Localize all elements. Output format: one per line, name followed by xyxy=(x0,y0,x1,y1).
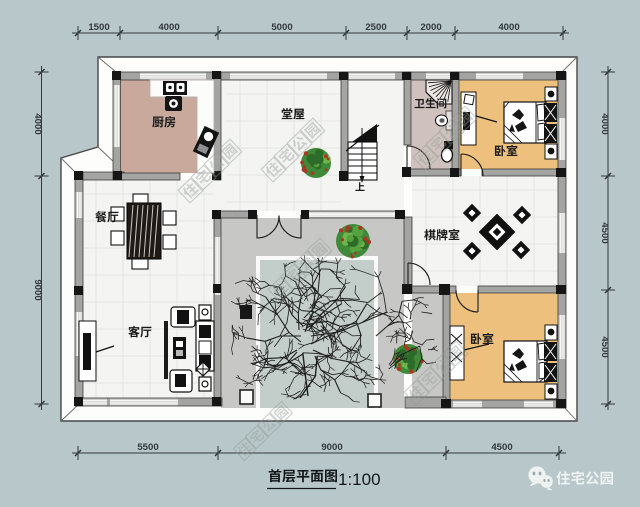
svg-text:1:100: 1:100 xyxy=(338,470,381,489)
svg-text:1500: 1500 xyxy=(88,22,109,33)
svg-text:5500: 5500 xyxy=(137,442,158,453)
svg-text:2000: 2000 xyxy=(420,22,441,33)
svg-text:9000: 9000 xyxy=(321,442,342,453)
svg-text:2500: 2500 xyxy=(365,22,386,33)
svg-text:5000: 5000 xyxy=(271,22,292,33)
svg-text:4500: 4500 xyxy=(599,222,610,243)
svg-text:4000: 4000 xyxy=(32,113,43,134)
svg-text:4000: 4000 xyxy=(158,22,179,33)
svg-text:4000: 4000 xyxy=(599,113,610,134)
svg-text:9000: 9000 xyxy=(32,279,43,300)
svg-text:4500: 4500 xyxy=(599,336,610,357)
svg-text:4000: 4000 xyxy=(498,22,519,33)
svg-text:4500: 4500 xyxy=(491,442,512,453)
